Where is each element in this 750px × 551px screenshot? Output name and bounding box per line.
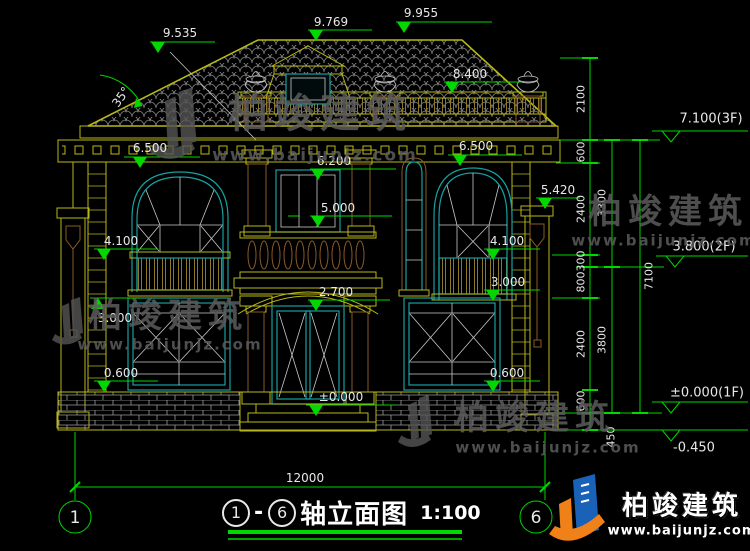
dim-300: 300 <box>576 251 587 272</box>
title-text: 轴立面图 <box>300 494 408 531</box>
level-label-1f: ±0.000(1F) <box>670 387 744 400</box>
elev-label-0600-right: 0.600 <box>490 367 524 379</box>
elev-label-9535: 9.535 <box>163 27 197 39</box>
elev-label-4100-right: 4.100 <box>490 235 524 247</box>
elev-label-0000-door: ±0.000 <box>319 391 363 403</box>
overall-width-dim: 12000 <box>286 472 324 484</box>
elev-label-6500-left: 6.500 <box>133 142 167 154</box>
title-scale: 1:100 <box>420 502 480 524</box>
level-label-3f: 7.100(3F) <box>679 113 742 126</box>
elev-label-5420: 5.420 <box>541 184 575 196</box>
elev-label-2700: 2.700 <box>319 286 353 298</box>
elev-label-3000-right: 3.000 <box>491 276 525 288</box>
dim-2100: 2100 <box>576 85 587 113</box>
title-dash: - <box>254 500 264 525</box>
title-axis-from: 1 <box>222 499 250 527</box>
axis-number-6: 6 <box>531 508 542 528</box>
dim-600-top: 600 <box>576 142 587 163</box>
drawing-title: 1 - 6 轴立面图 1:100 <box>222 494 481 531</box>
watermark-brand: 柏竣建筑 <box>455 401 615 435</box>
title-axis-to: 6 <box>268 499 296 527</box>
baijun-logo-icon <box>549 474 605 541</box>
left-corner-pilaster <box>57 162 89 428</box>
narrow-arched-window-2f <box>399 158 429 296</box>
elev-label-0600-left: 0.600 <box>104 367 138 379</box>
dim-3800: 3800 <box>597 326 608 354</box>
watermark-brand: 柏竣建筑 <box>88 299 248 333</box>
elev-label-9955: 9.955 <box>404 7 438 19</box>
logo-brand-text: 柏竣建筑 <box>622 486 742 523</box>
level-label-minus-0450: -0.450 <box>673 442 715 455</box>
elev-label-9769: 9.769 <box>314 16 348 28</box>
elev-label-8400: 8.400 <box>453 68 487 80</box>
watermark-url: www.baijunjz.com <box>77 338 262 353</box>
watermark-brand: 柏竣建筑 <box>228 94 412 134</box>
watermark-url: www.baijunjz.com <box>571 234 750 249</box>
watermark-url: www.baijunjz.com <box>455 441 640 456</box>
watermark-brand: 柏竣建筑 <box>588 195 748 229</box>
cad-linework <box>0 0 750 551</box>
dim-800: 800 <box>576 272 587 293</box>
elev-label-5000: 5.000 <box>321 202 355 214</box>
dim-2400-upper: 2400 <box>576 195 587 223</box>
dim-2400-lower: 2400 <box>576 330 587 358</box>
cad-elevation-canvas: 9.535 9.769 9.955 8.400 6.500 6.500 6.20… <box>0 0 750 551</box>
left-arched-window-2f <box>128 172 232 296</box>
dim-7100: 7100 <box>644 262 655 290</box>
axis-number-1: 1 <box>70 508 81 528</box>
balcony <box>234 150 382 294</box>
watermark-url: www.baijunjz.com <box>212 148 418 165</box>
right-window-1f <box>404 298 500 390</box>
elev-label-6500-right: 6.500 <box>459 140 493 152</box>
elev-label-4100-left: 4.100 <box>104 235 138 247</box>
entry-steps <box>240 404 376 431</box>
logo-url-text: www.baijunjz.com <box>608 524 750 539</box>
